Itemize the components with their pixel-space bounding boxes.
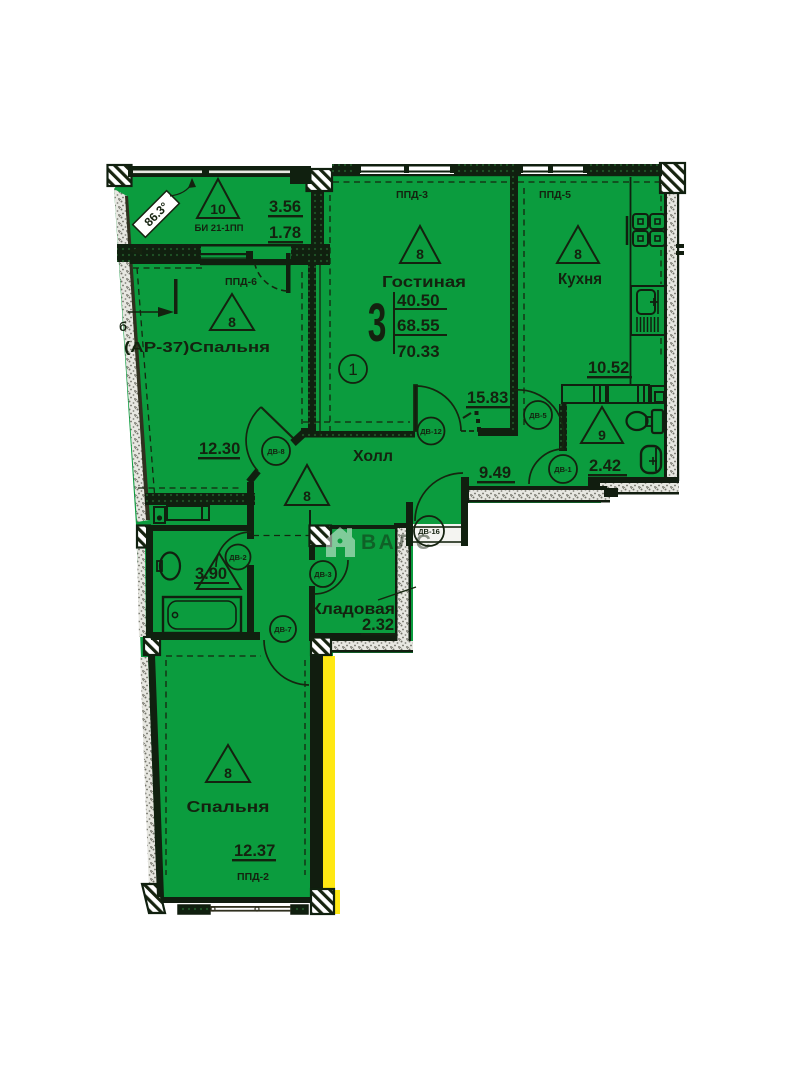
svg-text:(АР-37)Спальня: (АР-37)Спальня	[124, 339, 270, 356]
svg-text:ВАЛС: ВАЛС	[361, 531, 434, 554]
svg-text:ДВ-7: ДВ-7	[274, 625, 291, 634]
svg-text:Кухня: Кухня	[558, 271, 602, 288]
svg-text:68.55: 68.55	[397, 316, 440, 335]
svg-text:1.78: 1.78	[269, 224, 301, 242]
svg-text:15.83: 15.83	[467, 389, 508, 407]
svg-text:8: 8	[303, 488, 311, 504]
svg-text:ДВ-12: ДВ-12	[420, 427, 442, 436]
svg-text:10.52: 10.52	[588, 359, 629, 377]
svg-text:ППД-6: ППД-6	[225, 276, 257, 288]
svg-text:8: 8	[574, 246, 582, 262]
svg-text:40.50: 40.50	[397, 291, 440, 310]
svg-text:ДВ-8: ДВ-8	[267, 447, 284, 456]
svg-text:ДВ-1: ДВ-1	[554, 465, 571, 474]
svg-text:3.56: 3.56	[269, 198, 301, 216]
svg-text:Холл: Холл	[353, 448, 393, 465]
svg-text:2.32: 2.32	[362, 616, 394, 634]
svg-text:8: 8	[228, 314, 236, 330]
svg-text:ППД-2: ППД-2	[237, 871, 269, 883]
svg-text:ППД-3: ППД-3	[396, 189, 428, 201]
svg-text:б: б	[119, 319, 127, 334]
svg-text:ППД-5: ППД-5	[539, 189, 571, 201]
svg-text:12.30: 12.30	[199, 440, 240, 458]
svg-text:9.49: 9.49	[479, 464, 511, 482]
svg-text:8: 8	[416, 246, 424, 262]
svg-text:8: 8	[224, 765, 232, 781]
svg-text:70.33: 70.33	[397, 342, 440, 361]
svg-text:3.90: 3.90	[195, 565, 227, 583]
svg-text:12.37: 12.37	[234, 842, 275, 860]
svg-text:ДВ-3: ДВ-3	[314, 570, 331, 579]
svg-text:Спальня: Спальня	[187, 799, 270, 816]
svg-text:9: 9	[598, 427, 606, 443]
svg-text:ДВ-2: ДВ-2	[229, 553, 246, 562]
svg-text:Гостиная: Гостиная	[382, 274, 466, 291]
svg-text:2.42: 2.42	[589, 457, 621, 475]
svg-text:ДВ-5: ДВ-5	[529, 411, 546, 420]
svg-text:3: 3	[368, 292, 387, 353]
svg-text:10: 10	[210, 201, 226, 217]
svg-text:БИ 21-1ПП: БИ 21-1ПП	[195, 223, 244, 234]
svg-text:1: 1	[348, 360, 357, 379]
